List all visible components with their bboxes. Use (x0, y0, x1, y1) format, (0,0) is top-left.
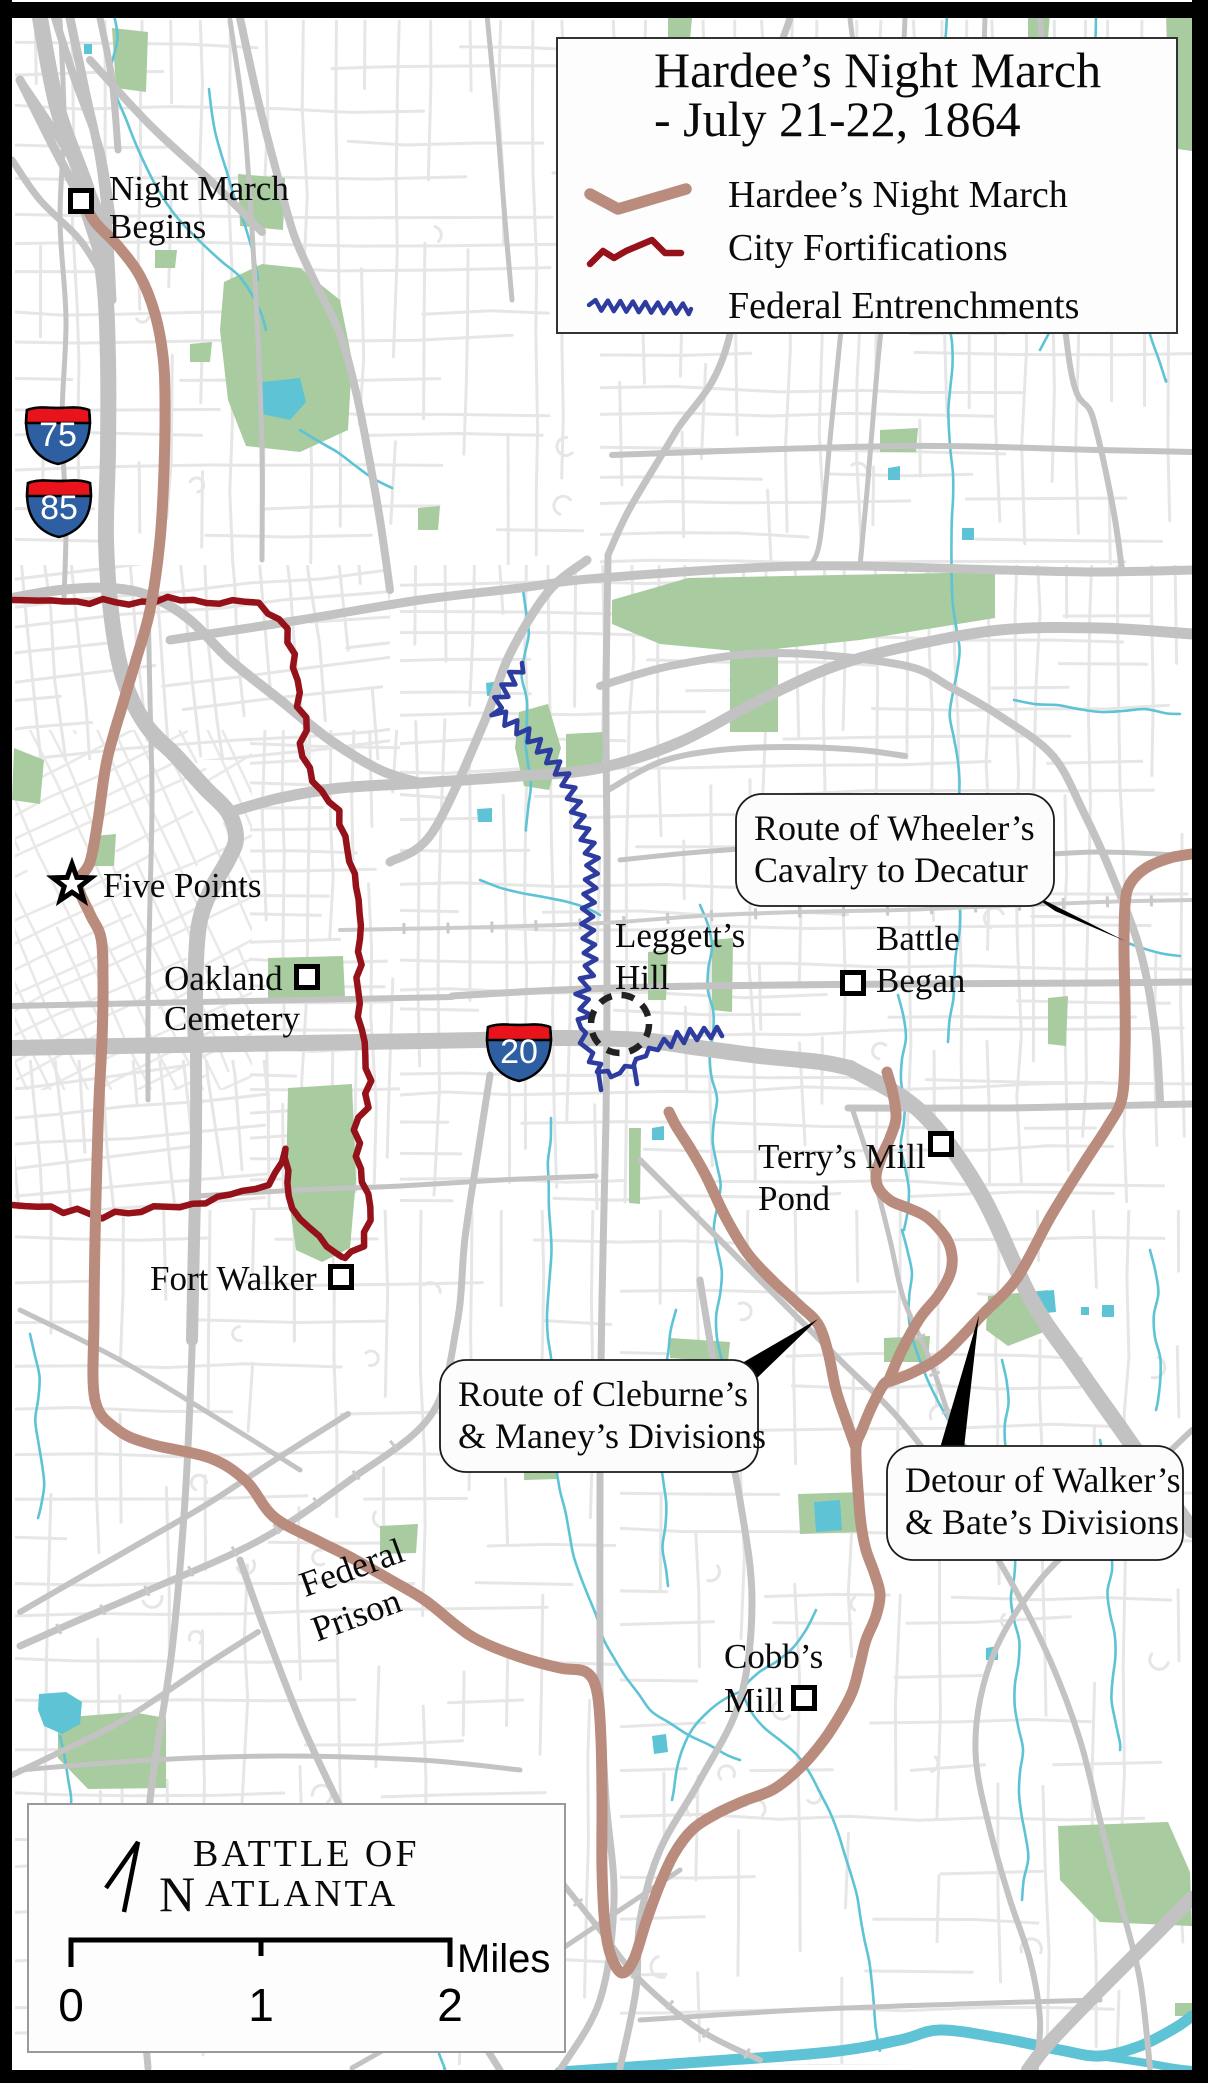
svg-text:Fort Walker: Fort Walker (150, 1259, 317, 1298)
svg-text:Miles: Miles (457, 1937, 550, 1981)
svg-text:Leggett’s: Leggett’s (615, 916, 745, 955)
svg-text:& Bate’s Divisions: & Bate’s Divisions (905, 1502, 1179, 1542)
svg-text:Battle: Battle (876, 919, 960, 958)
svg-text:Night March: Night March (109, 169, 289, 208)
svg-text:Route of Wheeler’s: Route of Wheeler’s (754, 808, 1035, 848)
svg-text:Five Points: Five Points (103, 866, 262, 905)
svg-text:City Fortifications: City Fortifications (728, 227, 1008, 269)
svg-text:Mill: Mill (724, 1681, 785, 1720)
svg-text:ATLANTA: ATLANTA (205, 1873, 398, 1915)
svg-text:85: 85 (40, 489, 78, 527)
svg-text:& Maney’s Divisions: & Maney’s Divisions (458, 1416, 766, 1456)
svg-text:BATTLE OF: BATTLE OF (193, 1833, 420, 1875)
svg-text:Began: Began (876, 961, 965, 1000)
svg-text:Cobb’s: Cobb’s (724, 1637, 823, 1676)
svg-text:Oakland: Oakland (164, 959, 283, 998)
svg-text:2: 2 (437, 1979, 463, 2031)
svg-text:0: 0 (58, 1979, 84, 2031)
svg-text:Terry’s Mill: Terry’s Mill (758, 1137, 926, 1176)
svg-text:Cavalry to Decatur: Cavalry to Decatur (754, 850, 1028, 890)
svg-text:Pond: Pond (758, 1179, 830, 1218)
svg-text:- July 21-22, 1864: - July 21-22, 1864 (654, 91, 1021, 147)
svg-text:20: 20 (500, 1033, 538, 1071)
svg-text:Hardee’s Night March: Hardee’s Night March (654, 42, 1101, 98)
svg-text:Detour of Walker’s: Detour of Walker’s (905, 1460, 1181, 1500)
svg-text:75: 75 (39, 416, 77, 454)
svg-text:Federal Entrenchments: Federal Entrenchments (728, 285, 1079, 327)
svg-text:Cemetery: Cemetery (164, 999, 301, 1038)
svg-text:1: 1 (248, 1979, 274, 2031)
svg-text:N: N (159, 1866, 195, 1922)
svg-text:Hardee’s Night March: Hardee’s Night March (728, 174, 1068, 216)
svg-text:Hill: Hill (615, 958, 670, 997)
svg-text:Route of Cleburne’s: Route of Cleburne’s (458, 1374, 748, 1414)
svg-text:Begins: Begins (109, 207, 206, 246)
